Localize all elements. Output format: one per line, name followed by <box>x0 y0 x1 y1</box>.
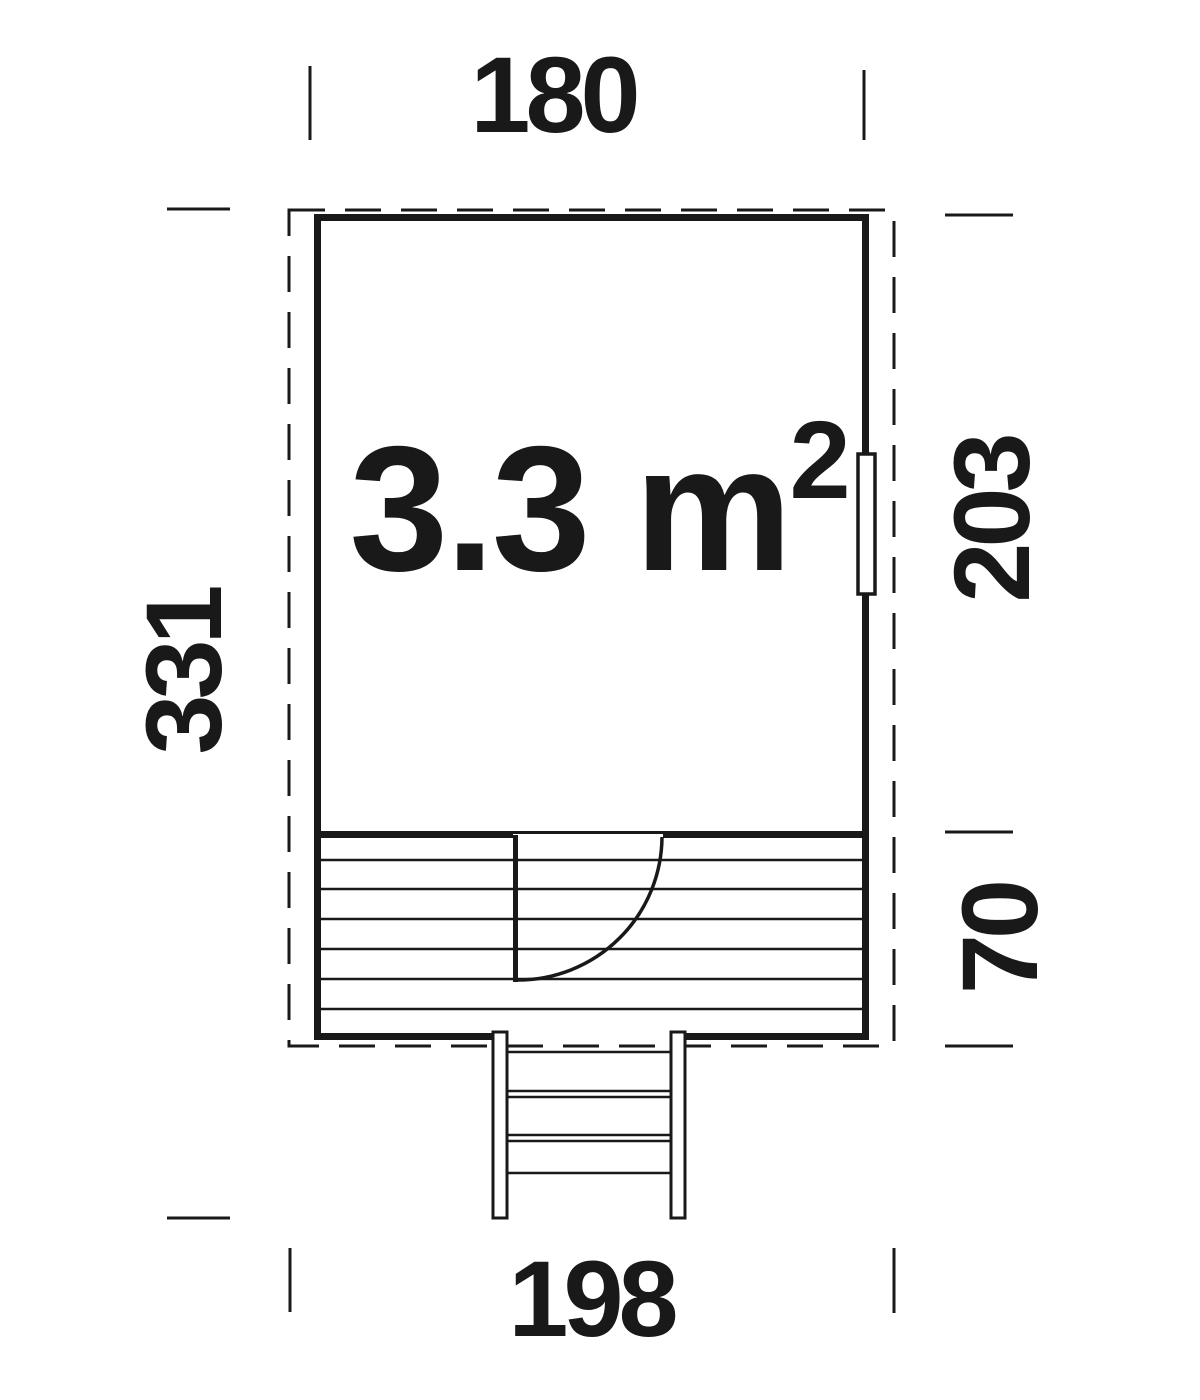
dimension-label-bottom-width: 198 <box>508 1245 673 1353</box>
step-treads <box>507 1052 671 1173</box>
dimension-label-top-width: 180 <box>470 41 635 149</box>
floor-plan: 180 331 203 70 198 3.3 m2 <box>0 0 1200 1400</box>
partition-left-segment <box>314 831 513 838</box>
wall-front-left-segment <box>314 1033 494 1040</box>
wall-right <box>862 214 869 1040</box>
window <box>858 454 875 594</box>
wall-top <box>314 214 869 221</box>
exterior-walls <box>314 214 869 1040</box>
roof-overhang-outline <box>289 210 894 1046</box>
area-value: 3.3 m <box>349 409 789 608</box>
door-opening-sill <box>513 831 666 834</box>
partition-wall <box>314 831 869 838</box>
dimension-label-right-room-depth: 203 <box>938 437 1046 602</box>
wall-left <box>314 214 321 1040</box>
area-label: 3.3 m2 <box>349 406 850 598</box>
steps-right-stringer <box>671 1032 685 1218</box>
dimension-ticks <box>167 66 1013 1313</box>
steps <box>493 1032 685 1218</box>
door-leaf <box>513 835 518 982</box>
dimension-label-left-total-depth: 331 <box>130 589 238 754</box>
deck-planks <box>321 860 862 1009</box>
steps-left-stringer <box>493 1032 507 1218</box>
area-superscript: 2 <box>789 399 850 522</box>
door-swing-arc <box>518 837 662 980</box>
partition-right-segment <box>663 831 869 838</box>
wall-front-right-segment <box>684 1033 869 1040</box>
dimension-label-right-terrace-depth: 70 <box>946 884 1054 994</box>
